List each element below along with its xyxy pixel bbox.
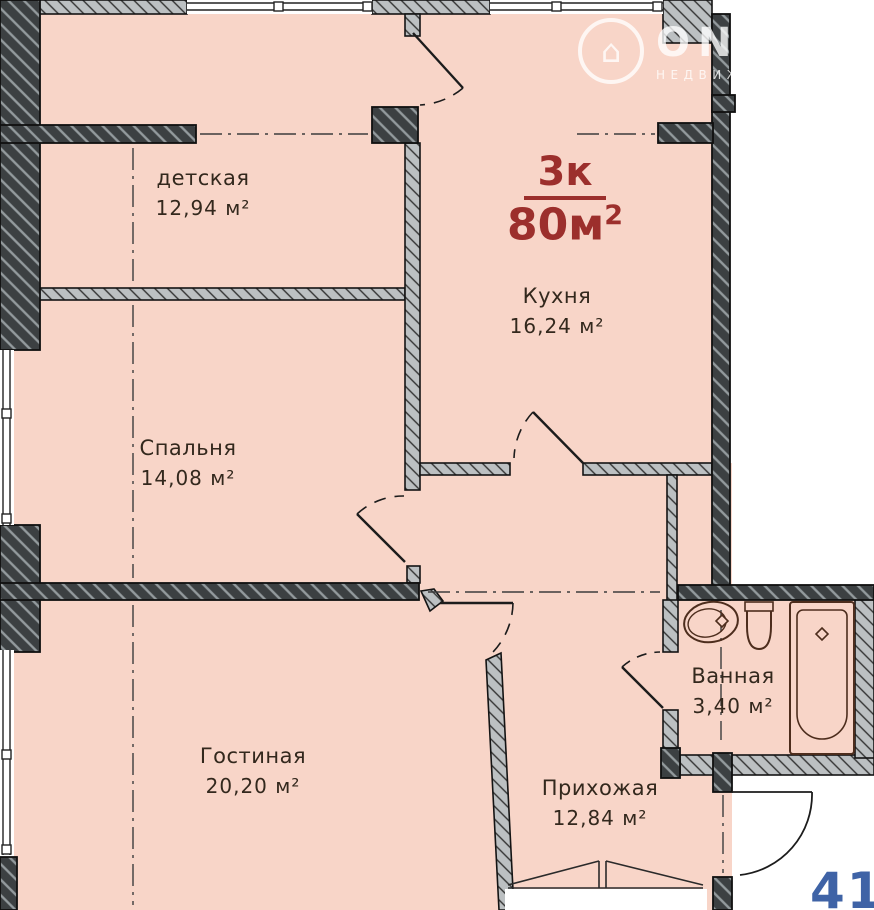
wall-bedroom-bottom bbox=[0, 583, 419, 600]
wall-bedroom-top bbox=[15, 288, 405, 300]
wall-entry-stub-top bbox=[713, 753, 732, 792]
wall-entry-stub-bottom bbox=[713, 877, 732, 910]
plan-number: 410 bbox=[810, 862, 874, 910]
window-left-2 bbox=[0, 650, 14, 855]
wall-bathroom-bottom bbox=[680, 755, 874, 775]
wall-kitchen-bottom-right bbox=[583, 463, 712, 475]
floor-plan: детская 12,94 м² Кухня 16,24 м² Спальня … bbox=[0, 0, 874, 910]
apartment-rooms-count: 3к bbox=[524, 152, 607, 200]
wall-stub-nursery-door bbox=[405, 14, 420, 36]
wall-kitchen-stub bbox=[658, 123, 713, 143]
wall-jamb-bedroom bbox=[407, 566, 420, 583]
wall-top-right-corner bbox=[663, 0, 712, 43]
apartment-total-area: 80м2 bbox=[506, 202, 624, 248]
wall-block-nursery-right bbox=[372, 107, 418, 143]
wall-left-upper bbox=[0, 0, 40, 350]
wall-nursery-top bbox=[0, 125, 196, 143]
wall-bathroom-left-upper bbox=[663, 600, 678, 652]
wall-bathroom-right bbox=[855, 598, 874, 758]
window-top-2 bbox=[490, 0, 663, 14]
door-entry bbox=[732, 792, 812, 875]
plan-bottom-gap bbox=[505, 889, 707, 910]
wall-right-pilaster bbox=[712, 95, 735, 112]
window-left-1 bbox=[0, 350, 14, 525]
wall-shaft bbox=[667, 475, 677, 602]
wall-kitchen-bottom-left bbox=[420, 463, 510, 475]
wall-left-bottom-corner bbox=[0, 857, 17, 910]
wall-bathroom-top bbox=[678, 585, 874, 600]
window-top-1 bbox=[187, 0, 372, 14]
wall-top-mid bbox=[372, 0, 490, 14]
apartment-title: 3к 80м2 bbox=[506, 152, 624, 248]
floor-plan-drawing bbox=[0, 0, 874, 910]
wall-bathroom-corner-block bbox=[661, 748, 680, 778]
wall-vertical-center bbox=[405, 143, 420, 490]
